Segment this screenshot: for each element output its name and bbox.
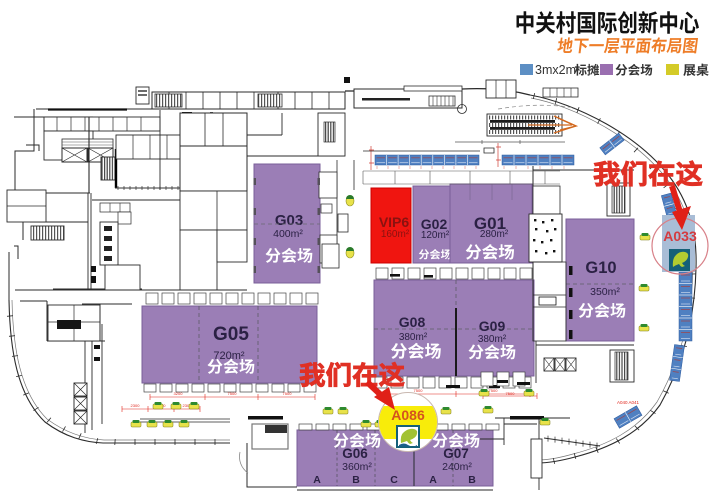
svg-text:A: A: [429, 474, 437, 486]
svg-text:G07: G07: [443, 446, 469, 461]
svg-text:240m²: 240m²: [442, 461, 472, 473]
svg-text:360m²: 360m²: [342, 461, 372, 473]
svg-text:3200: 3200: [174, 391, 184, 396]
svg-text:B: B: [352, 474, 360, 486]
svg-text:380m²: 380m²: [399, 332, 428, 343]
svg-text:7500: 7500: [228, 391, 238, 396]
svg-text:350m²: 350m²: [590, 286, 620, 298]
svg-text:400m²: 400m²: [273, 228, 303, 240]
svg-text:3mx2m: 3mx2m: [535, 63, 576, 77]
svg-text:2300: 2300: [131, 403, 141, 408]
svg-text:G06: G06: [342, 446, 368, 461]
svg-text:A040 A041: A040 A041: [617, 400, 640, 405]
svg-text:160m²: 160m²: [381, 229, 410, 240]
svg-text:VIP6: VIP6: [379, 214, 410, 230]
svg-text:G03: G03: [275, 212, 303, 229]
svg-text:G08: G08: [399, 314, 426, 330]
svg-text:A033: A033: [663, 228, 697, 244]
svg-text:A: A: [313, 474, 321, 486]
svg-text:120m²: 120m²: [421, 230, 450, 241]
svg-text:G05: G05: [213, 324, 249, 345]
svg-text:7500: 7500: [506, 391, 516, 396]
svg-text:380m²: 380m²: [478, 334, 507, 345]
svg-text:C: C: [390, 474, 398, 486]
svg-text:G10: G10: [585, 259, 616, 277]
svg-text:G09: G09: [479, 318, 506, 334]
svg-text:A086: A086: [391, 407, 425, 423]
svg-text:7500: 7500: [283, 391, 293, 396]
svg-text:B: B: [468, 474, 476, 486]
svg-text:280m²: 280m²: [480, 229, 509, 240]
svg-text:7500: 7500: [489, 388, 499, 393]
svg-text:7500: 7500: [414, 388, 424, 393]
